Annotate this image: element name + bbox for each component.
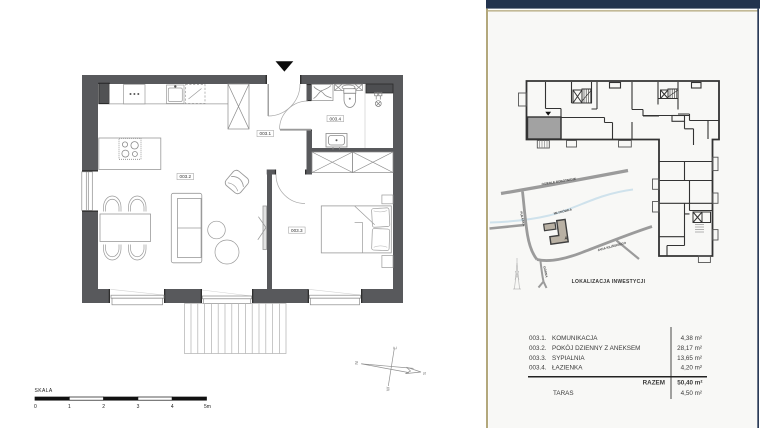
svg-text:KOMUNIKACJA: KOMUNIKACJA <box>552 335 598 342</box>
svg-text:003.4.: 003.4. <box>529 365 547 372</box>
svg-text:003.2.: 003.2. <box>529 345 547 352</box>
svg-text:50,40 m²: 50,40 m² <box>677 380 702 387</box>
svg-text:0: 0 <box>34 404 37 410</box>
svg-text:SKALA: SKALA <box>35 388 53 394</box>
svg-text:E: E <box>392 346 397 349</box>
svg-text:2: 2 <box>102 404 105 410</box>
svg-text:W: W <box>385 386 390 391</box>
svg-text:N: N <box>354 361 359 364</box>
svg-text:003.4: 003.4 <box>330 116 342 121</box>
svg-text:SYPIALNIA: SYPIALNIA <box>552 355 585 362</box>
svg-text:4,50 m²: 4,50 m² <box>681 390 702 397</box>
svg-text:5m: 5m <box>204 404 211 410</box>
svg-text:RAZEM: RAZEM <box>643 380 665 387</box>
svg-text:003.1: 003.1 <box>260 131 272 136</box>
svg-text:ŁAZIENKA: ŁAZIENKA <box>552 365 583 372</box>
svg-text:4,20 m²: 4,20 m² <box>681 365 702 372</box>
svg-text:1: 1 <box>68 404 71 410</box>
svg-text:S: S <box>422 372 427 375</box>
svg-text:13,65 m²: 13,65 m² <box>677 355 702 362</box>
svg-text:4: 4 <box>171 404 174 410</box>
svg-text:003.3: 003.3 <box>291 228 303 233</box>
svg-text:003.3.: 003.3. <box>529 355 547 362</box>
svg-text:TARAS: TARAS <box>553 390 574 397</box>
svg-text:003.1.: 003.1. <box>529 335 547 342</box>
svg-text:A: A <box>565 236 568 241</box>
svg-text:4,38 m²: 4,38 m² <box>681 335 702 342</box>
svg-text:3: 3 <box>137 404 140 410</box>
svg-text:LOKALIZACJA INWESTYCJI: LOKALIZACJA INWESTYCJI <box>572 279 646 285</box>
svg-text:003.2: 003.2 <box>180 174 192 179</box>
svg-text:POKÓJ DZIENNY Z ANEKSEM: POKÓJ DZIENNY Z ANEKSEM <box>552 343 640 352</box>
svg-text:28,17 m²: 28,17 m² <box>677 345 702 352</box>
